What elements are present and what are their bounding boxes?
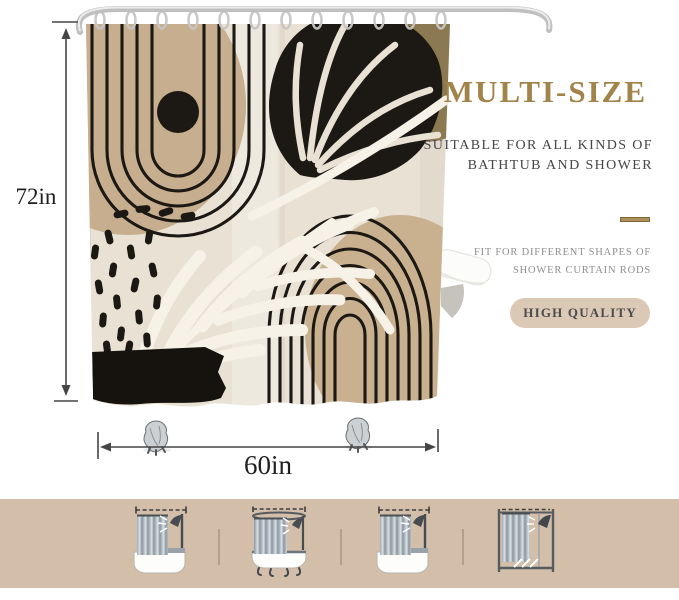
strip-divider (218, 529, 220, 565)
headline: MULTI-SIZE (444, 74, 647, 110)
subheadline-line1: SUITABLE FOR ALL KINDS OF (424, 136, 653, 156)
shower-stall-icon (494, 506, 558, 580)
high-quality-badge: HIGH QUALITY (510, 298, 650, 328)
product-image: 72in 60in MULTI-SIZE SUITABLE FOR ALL KI… (0, 0, 679, 600)
straight-rod-bathtub-icon (372, 506, 436, 580)
strip-divider (340, 529, 342, 565)
feature-text: FIT FOR DIFFERENT SHAPES OF SHOWER CURTA… (474, 244, 651, 280)
subheadline: SUITABLE FOR ALL KINDS OF BATHTUB AND SH… (424, 136, 653, 176)
size-variants-strip (0, 499, 679, 588)
curved-rod-clawfoot-tub-icon (247, 506, 311, 580)
straight-rod-bathtub-icon (129, 506, 193, 580)
gold-divider (620, 217, 650, 222)
feature-line1: FIT FOR DIFFERENT SHAPES OF (474, 244, 651, 262)
strip-divider (462, 529, 464, 565)
feature-line2: SHOWER CURTAIN RODS (474, 262, 651, 280)
subheadline-line2: BATHTUB AND SHOWER (424, 156, 653, 176)
